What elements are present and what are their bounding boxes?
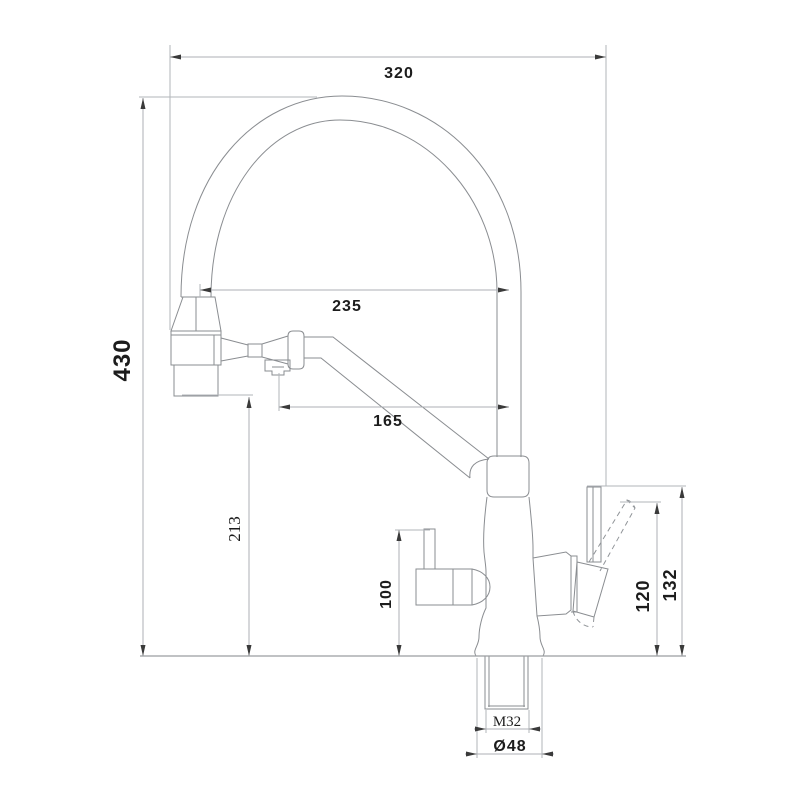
label-spray-head-height: 213 <box>225 516 244 542</box>
spray-head <box>171 297 304 396</box>
label-filter-handle-height: 100 <box>378 579 395 609</box>
spout-arc <box>181 96 521 457</box>
label-lever-tilted-height: 120 <box>633 579 653 612</box>
mixer-lever-solid <box>573 487 608 617</box>
mounting-shank <box>485 656 528 709</box>
technical-drawing: 320 430 235 165 213 100 120 132 M32 Ø48 <box>0 0 800 800</box>
label-lever-top-height: 132 <box>660 568 680 601</box>
faucet-dimension-diagram: 320 430 235 165 213 100 120 132 M32 Ø48 <box>0 0 800 800</box>
label-thread-size: M32 <box>493 714 521 730</box>
faucet-outline <box>171 96 635 709</box>
filter-handle <box>416 529 490 605</box>
extension-lines <box>139 45 686 758</box>
dimension-lines <box>139 45 686 758</box>
label-overall-height: 430 <box>109 338 136 381</box>
label-overall-width: 320 <box>384 65 414 82</box>
label-base-diameter: Ø48 <box>493 738 526 755</box>
faucet-body-column <box>475 456 577 656</box>
label-spout-offset: 235 <box>332 298 362 315</box>
dimension-measure-lines <box>143 57 682 754</box>
dimension-labels: 320 430 235 165 213 100 120 132 M32 Ø48 <box>109 65 680 755</box>
label-arm-offset: 165 <box>373 413 403 430</box>
